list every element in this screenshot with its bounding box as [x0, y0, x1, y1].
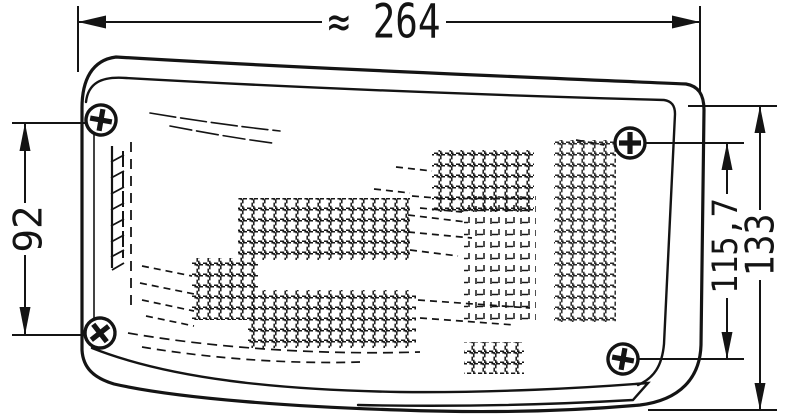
dimension-width-value: ≈ 264: [328, 0, 441, 50]
lamp-dimension-drawing: ≈ 264 92 115,7 133: [0, 0, 800, 417]
dimension-total-height-value: 133: [739, 214, 784, 277]
phillips-screw-icon: [79, 312, 121, 354]
arrowhead: [755, 383, 766, 410]
arrowhead: [20, 123, 31, 151]
lens-texture: [111, 140, 616, 374]
arrowhead: [78, 16, 106, 29]
arrowhead: [722, 332, 733, 359]
arrowhead: [755, 106, 766, 133]
technical-drawing-page: ≈ 264 92 115,7 133: [0, 0, 800, 417]
arrowhead: [722, 143, 733, 170]
phillips-screw-icon: [84, 103, 119, 138]
dimension-mounting-height-value: 92: [7, 206, 52, 253]
mesh-patch: [464, 342, 524, 374]
lamp-bottom-lip: [92, 348, 648, 406]
phillips-screw-icon: [615, 128, 645, 158]
lens-step-line-upper: [150, 113, 280, 131]
mesh-patch: [554, 140, 616, 322]
arrowhead: [20, 307, 31, 335]
mesh-patch: [238, 198, 410, 260]
lens-ladder-rib: [111, 142, 131, 306]
phillips-screw-icon: [606, 342, 641, 377]
arrowhead: [672, 16, 700, 29]
mesh-patch: [464, 196, 536, 324]
mesh-patch: [248, 290, 416, 348]
